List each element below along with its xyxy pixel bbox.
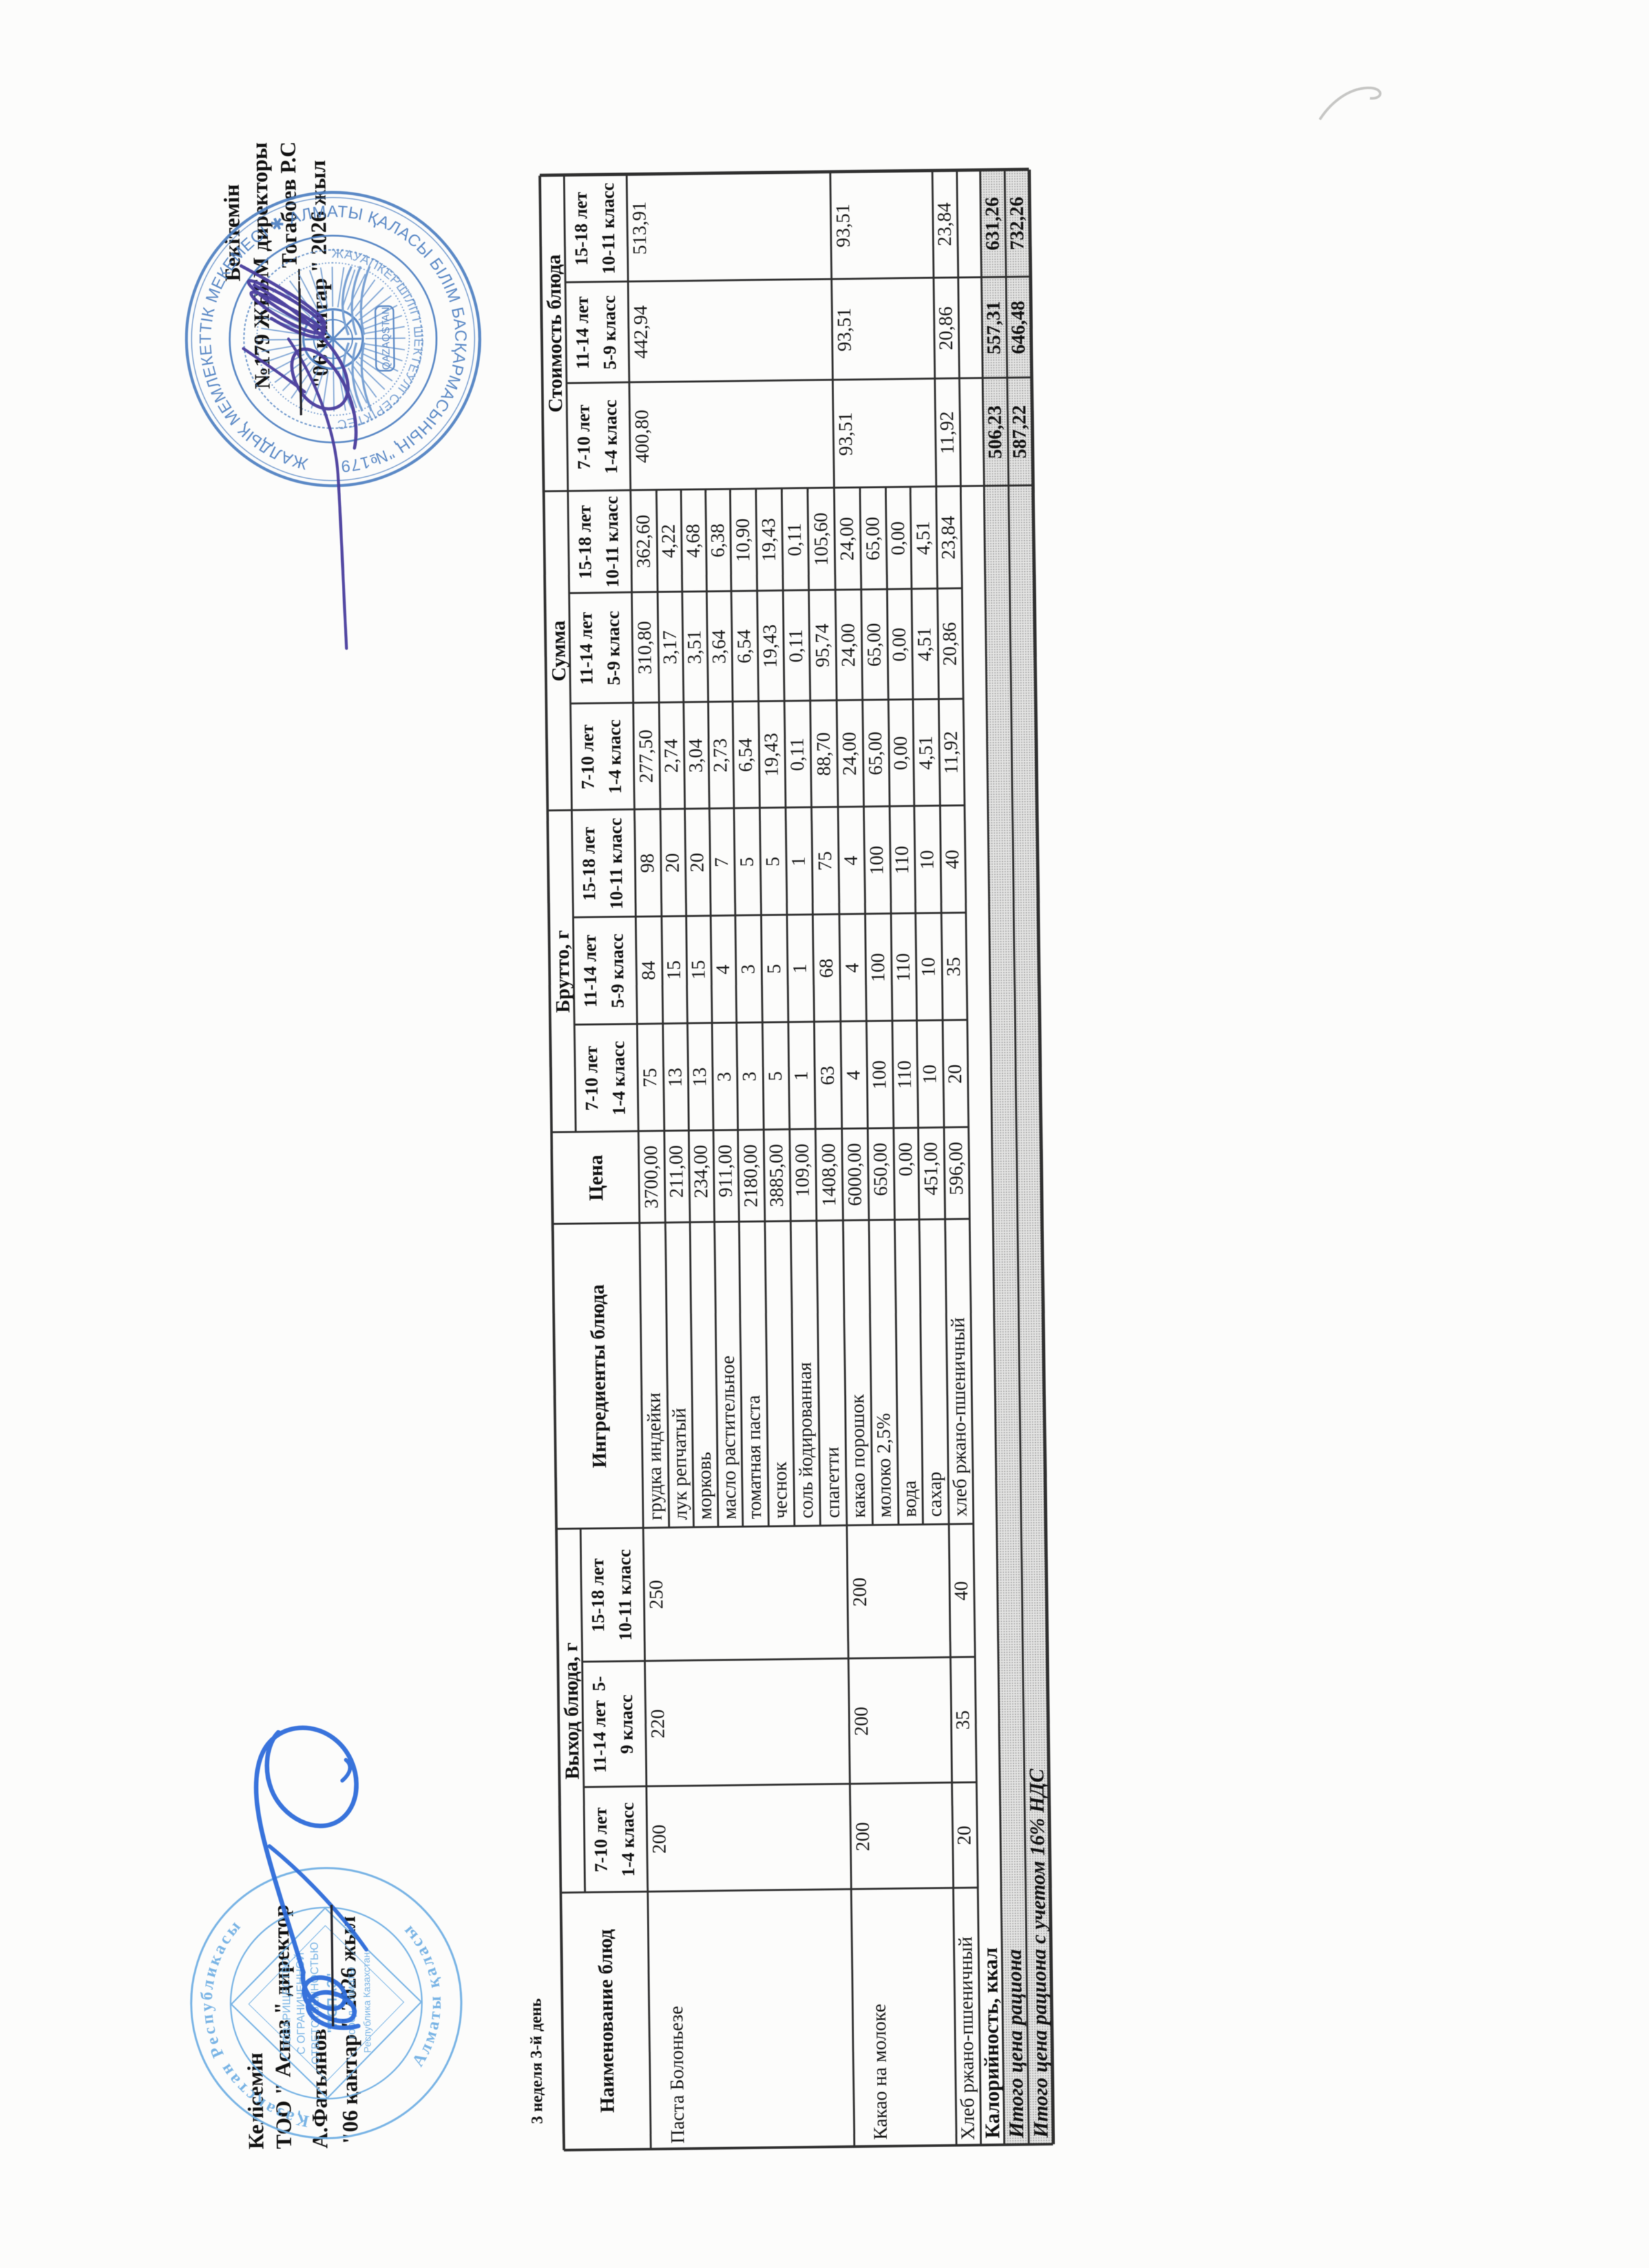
svg-text:QAZAQSTAN: QAZAQSTAN (381, 307, 392, 370)
svg-text:ТОВАРИЩЕСТВО: ТОВАРИЩЕСТВО (280, 1958, 293, 2050)
svg-text:Республика Казахстан: Республика Казахстан (361, 1952, 373, 2053)
